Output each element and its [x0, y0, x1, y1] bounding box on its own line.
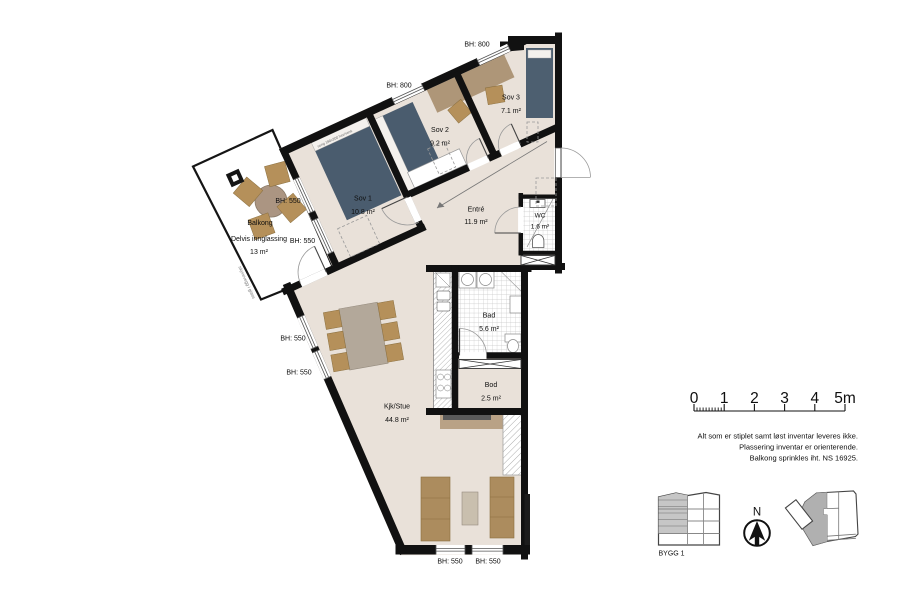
svg-text:Sov 2: Sov 2	[431, 127, 449, 134]
svg-text:BH: 550: BH: 550	[290, 238, 315, 245]
svg-text:Balkong sprinkles iht. NS 1692: Balkong sprinkles iht. NS 16925.	[750, 454, 858, 463]
svg-text:3: 3	[780, 390, 789, 407]
svg-text:Bod: Bod	[485, 382, 498, 389]
svg-text:0: 0	[690, 390, 699, 407]
svg-text:Sov 3: Sov 3	[502, 95, 520, 102]
svg-text:5.6 m²: 5.6 m²	[479, 326, 500, 333]
svg-text:Balkong: Balkong	[247, 220, 272, 227]
svg-text:Bad: Bad	[483, 313, 496, 320]
svg-text:WC: WC	[535, 213, 546, 220]
svg-text:BYGG 1: BYGG 1	[659, 551, 685, 558]
svg-text:BH: 550: BH: 550	[275, 198, 300, 205]
svg-text:Entré: Entré	[468, 207, 485, 214]
svg-text:Alt som er stiplet samt løst i: Alt som er stiplet samt løst inventar le…	[698, 432, 858, 441]
svg-text:1: 1	[720, 390, 729, 407]
svg-text:2.5 m²: 2.5 m²	[481, 396, 502, 403]
svg-text:BH: 550: BH: 550	[280, 336, 305, 343]
svg-text:10.8 m²: 10.8 m²	[351, 209, 375, 216]
svg-text:5m: 5m	[834, 390, 856, 407]
svg-text:Delvis innglassing: Delvis innglassing	[231, 236, 287, 243]
svg-text:9.2 m²: 9.2 m²	[430, 141, 451, 148]
svg-text:BH: 550: BH: 550	[475, 559, 500, 566]
svg-text:1.6 m²: 1.6 m²	[531, 224, 550, 231]
svg-text:N: N	[753, 507, 761, 519]
svg-text:BH: 800: BH: 800	[386, 83, 411, 90]
svg-text:11.9 m²: 11.9 m²	[464, 219, 488, 226]
svg-text:BH: 550: BH: 550	[286, 370, 311, 377]
svg-text:Sov 1: Sov 1	[354, 196, 372, 203]
svg-text:BH: 800: BH: 800	[464, 42, 489, 49]
svg-text:Plassering inventar er oriente: Plassering inventar er orienterende.	[739, 443, 858, 452]
svg-text:4: 4	[810, 390, 819, 407]
svg-text:7.1 m²: 7.1 m²	[501, 108, 522, 115]
svg-text:Kjk/Stue: Kjk/Stue	[384, 404, 410, 411]
svg-text:13 m²: 13 m²	[250, 249, 269, 256]
svg-text:2: 2	[750, 390, 759, 407]
svg-text:44.8 m²: 44.8 m²	[385, 417, 409, 424]
svg-text:BH: 550: BH: 550	[437, 559, 462, 566]
